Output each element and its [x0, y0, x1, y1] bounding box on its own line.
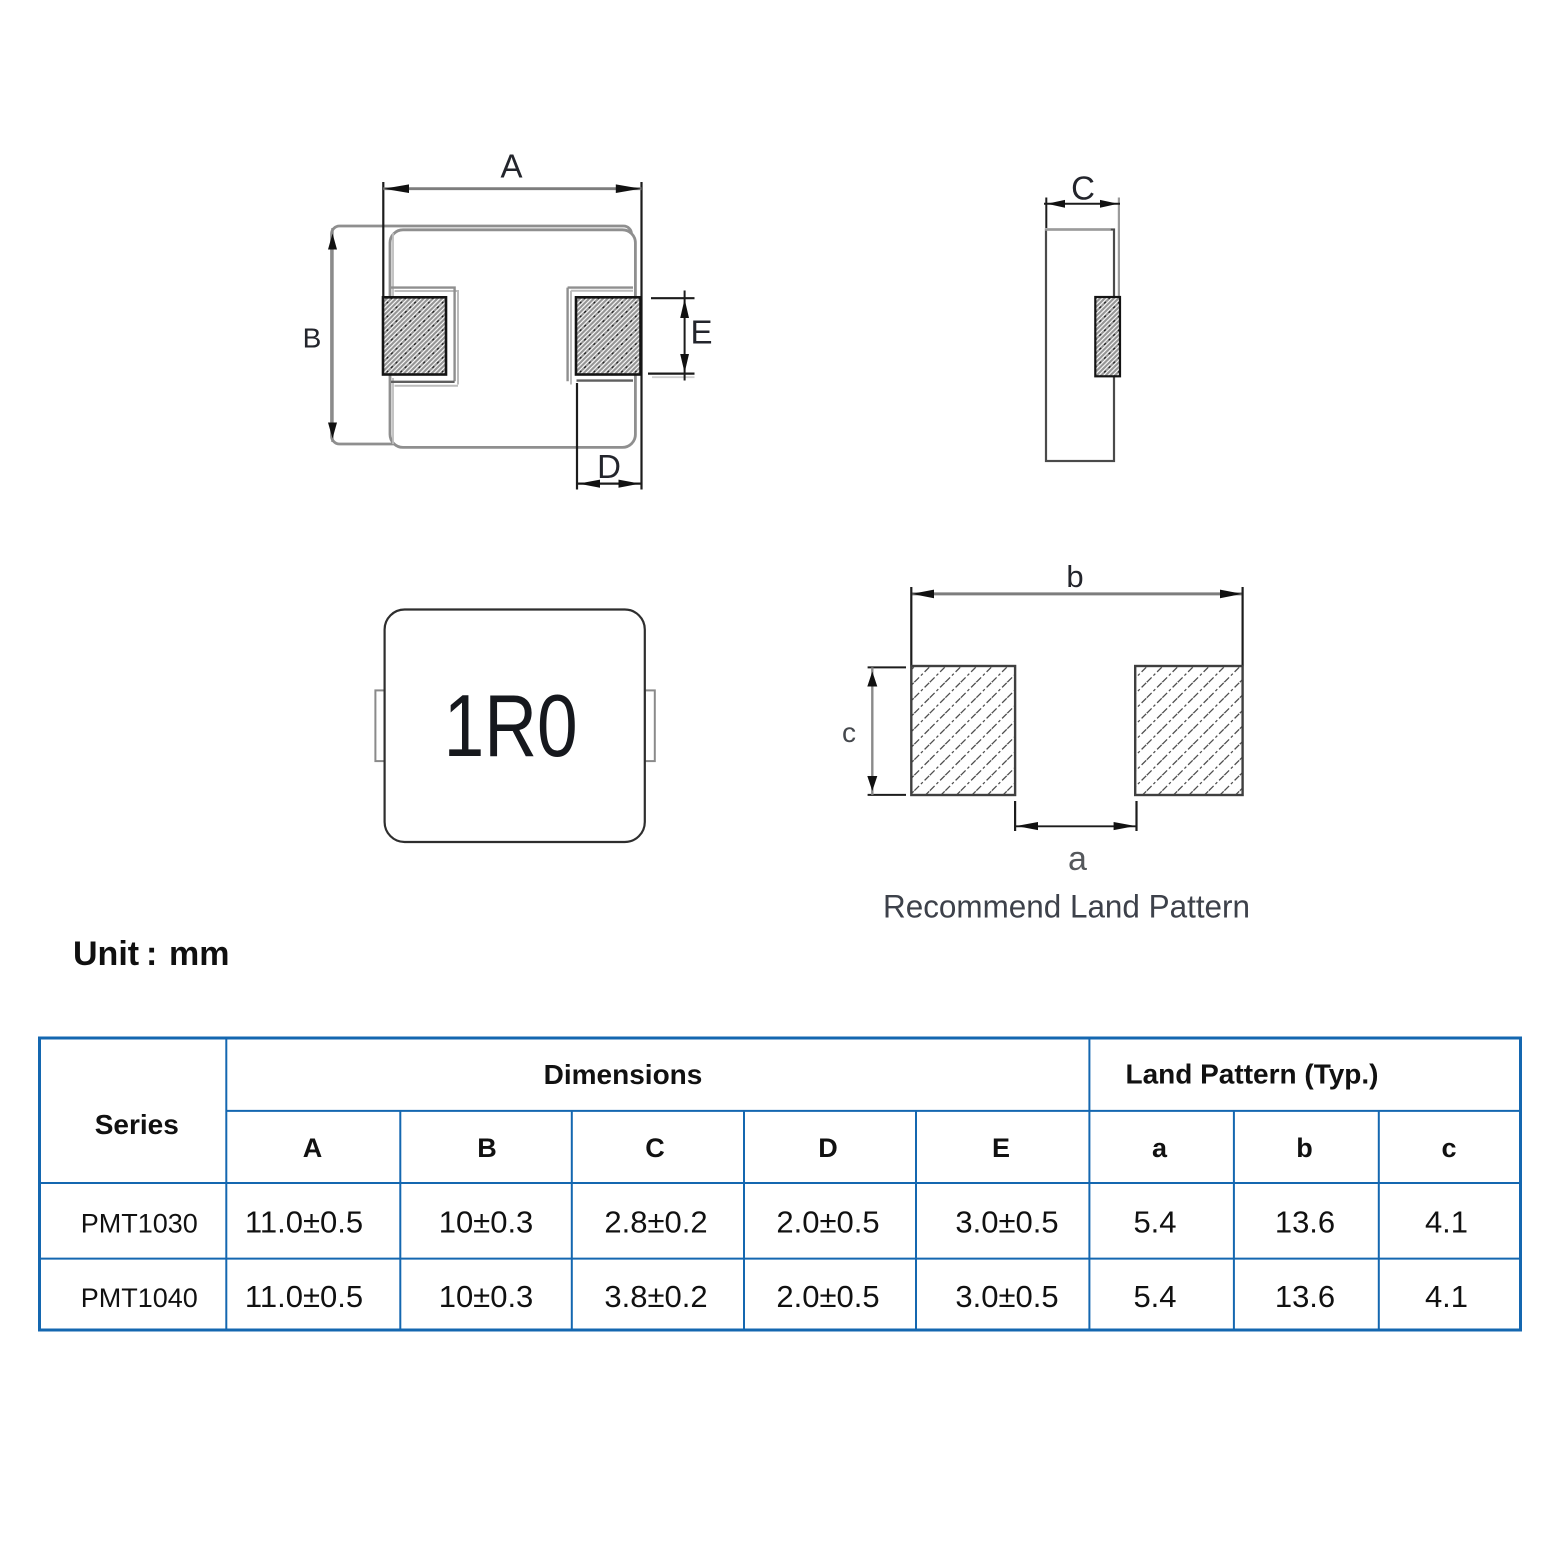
svg-text:4.1: 4.1 [1425, 1205, 1468, 1240]
svg-text:11.0±0.5: 11.0±0.5 [245, 1279, 363, 1314]
svg-text:13.6: 13.6 [1275, 1205, 1335, 1240]
svg-text:3.0±0.5: 3.0±0.5 [955, 1205, 1058, 1240]
svg-text::: : [146, 935, 157, 973]
svg-text:3.0±0.5: 3.0±0.5 [955, 1279, 1058, 1314]
svg-text:a: a [1068, 840, 1087, 878]
svg-text:Unit: Unit [73, 935, 139, 973]
svg-text:a: a [1152, 1133, 1168, 1163]
svg-text:mm: mm [169, 935, 229, 973]
svg-text:A: A [303, 1133, 323, 1163]
svg-text:3.8±0.2: 3.8±0.2 [604, 1279, 707, 1314]
svg-text:D: D [818, 1133, 838, 1163]
svg-text:C: C [645, 1133, 665, 1163]
svg-text:Series: Series [95, 1109, 179, 1140]
svg-text:2.0±0.5: 2.0±0.5 [776, 1205, 879, 1240]
svg-text:10±0.3: 10±0.3 [439, 1279, 534, 1314]
svg-text:2.0±0.5: 2.0±0.5 [776, 1279, 879, 1314]
svg-text:1R0: 1R0 [444, 676, 578, 775]
svg-text:11.0±0.5: 11.0±0.5 [245, 1205, 363, 1240]
svg-text:C: C [1071, 170, 1095, 207]
svg-text:c: c [842, 717, 856, 748]
svg-text:5.4: 5.4 [1133, 1205, 1176, 1240]
svg-text:D: D [597, 448, 621, 485]
svg-text:Dimensions: Dimensions [544, 1059, 703, 1090]
svg-text:c: c [1441, 1133, 1456, 1163]
svg-text:2.8±0.2: 2.8±0.2 [604, 1205, 707, 1240]
svg-text:Recommend Land Pattern: Recommend Land Pattern [883, 889, 1250, 925]
svg-text:b: b [1066, 559, 1083, 594]
svg-text:10±0.3: 10±0.3 [439, 1205, 534, 1240]
svg-text:PMT1040: PMT1040 [81, 1283, 198, 1313]
svg-text:b: b [1296, 1133, 1313, 1163]
svg-text:E: E [992, 1133, 1010, 1163]
svg-text:13.6: 13.6 [1275, 1279, 1335, 1314]
svg-text:5.4: 5.4 [1133, 1279, 1176, 1314]
svg-text:E: E [690, 314, 712, 351]
svg-text:A: A [500, 148, 522, 185]
svg-text:B: B [477, 1133, 497, 1163]
svg-text:Land Pattern (Typ.): Land Pattern (Typ.) [1125, 1059, 1378, 1090]
svg-text:B: B [303, 323, 322, 354]
svg-text:PMT1030: PMT1030 [81, 1209, 198, 1239]
svg-text:4.1: 4.1 [1425, 1279, 1468, 1314]
